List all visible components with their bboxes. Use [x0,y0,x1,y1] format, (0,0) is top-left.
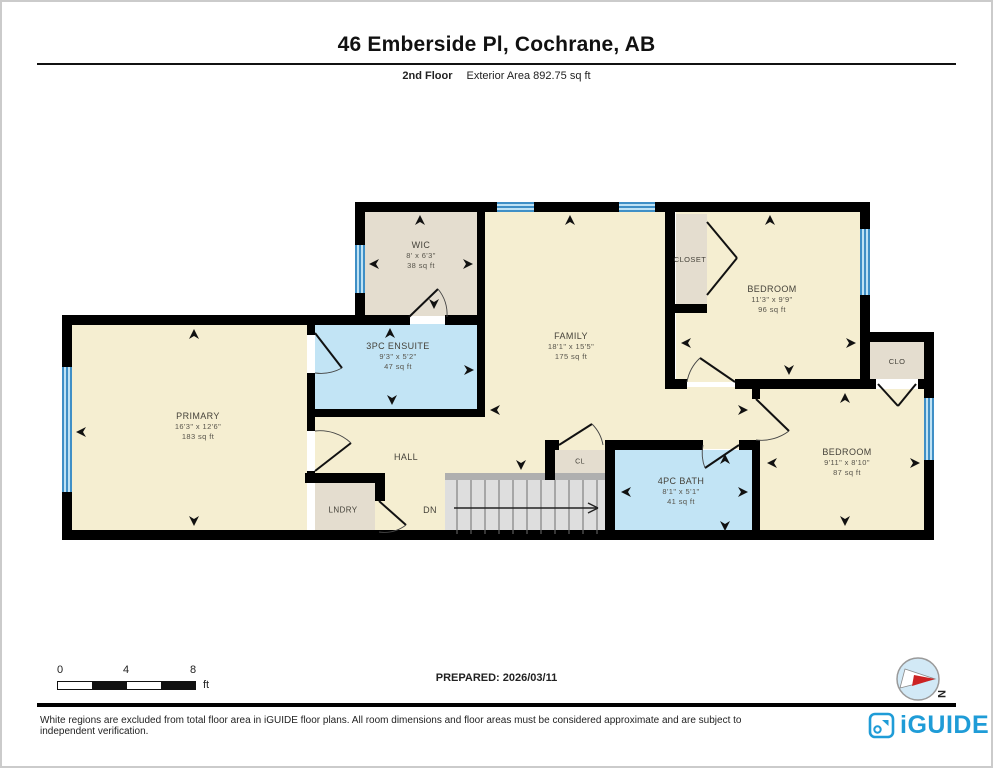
room-name-bedroom-2: BEDROOM [822,446,871,458]
room-dimensions-family: 18'1" x 15'5" [548,342,594,352]
wall-27 [605,440,615,540]
wall-14 [305,473,385,483]
room-label-bedroom-1: BEDROOM11'3" x 9'9"96 sq ft [747,283,796,315]
room-label-wic: WIC8' x 6'3"38 sq ft [406,239,436,271]
wall-7 [860,332,934,342]
room-name-cl: CL [575,457,585,466]
iguide-logo: iGUIDE [868,711,989,740]
room-area-family: 175 sq ft [548,352,594,362]
iguide-logo-text: iGUIDE [900,711,989,740]
prepared-date: PREPARED: 2026/03/11 [2,672,991,684]
wall-24 [752,440,760,540]
wall-12 [307,373,315,431]
room-name-closet-1: CLOSET [674,255,706,265]
room-dimensions-bedroom-2: 9'11" x 8'10" [822,458,871,468]
room-area-ensuite: 47 sq ft [366,362,429,372]
room-label-ensuite: 3PC ENSUITE9'3" x 5'2"47 sq ft [366,340,429,372]
wall-16 [355,315,410,325]
wall-3 [62,315,365,325]
room-area-bedroom-1: 96 sq ft [747,305,796,315]
room-dimensions-bath: 8'1" x 5'1" [658,487,705,497]
wall-19 [665,304,707,313]
room-name-family: FAMILY [548,330,594,342]
room-label-bedroom-2: BEDROOM9'11" x 8'10"87 sq ft [822,446,871,478]
room-name-bedroom-1: BEDROOM [747,283,796,295]
wall-22 [918,379,934,389]
room-area-primary: 183 sq ft [175,432,221,442]
room-name-dn: DN [423,504,437,516]
room-label-clo: CLO [889,357,906,367]
window-5 [860,229,870,295]
wall-9 [477,202,485,417]
wall-18 [665,212,675,384]
stair-rail-fill [445,473,605,480]
room-name-ensuite: 3PC ENSUITE [366,340,429,352]
room-name-lndry: LNDRY [329,506,358,517]
wall-26 [739,440,760,450]
wall-15 [375,483,385,501]
room-label-closet-1: CLOSET [674,255,706,265]
wall-11 [307,315,315,335]
wall-29 [545,440,555,480]
wall-25 [605,440,703,450]
room-label-primary: PRIMARY16'3" x 12'6"183 sq ft [175,410,221,442]
room-name-primary: PRIMARY [175,410,221,422]
room-dimensions-wic: 8' x 6'3" [406,251,436,261]
window-4 [619,202,655,212]
iguide-logo-icon [868,712,895,739]
room-area-bedroom-2: 87 sq ft [822,468,871,478]
disclaimer-text: White regions are excluded from total fl… [40,715,780,737]
compass-icon: N [886,650,954,710]
wall-10 [307,409,485,417]
room-label-cl: CL [575,457,585,466]
room-area-bath: 41 sq ft [658,497,705,507]
window-6 [924,398,934,460]
room-name-bath: 4PC BATH [658,475,705,487]
wall-5 [62,530,934,540]
window-2 [355,245,365,293]
room-area-wic: 38 sq ft [406,261,436,271]
floorplan-page: 46 Emberside Pl, Cochrane, AB 2nd FloorE… [0,0,993,768]
wall-17 [445,315,485,325]
floorplan-canvas: WIC8' x 6'3"38 sq ft3PC ENSUITE9'3" x 5'… [2,2,991,766]
room-label-family: FAMILY18'1" x 15'5"175 sq ft [548,330,594,362]
room-label-lndry: LNDRY [329,506,358,517]
room-dimensions-primary: 16'3" x 12'6" [175,422,221,432]
stairs-fill [445,480,605,535]
room-label-hall: HALL [394,451,418,463]
room-name-clo: CLO [889,357,906,367]
room-label-dn: DN [423,504,437,516]
room-name-hall: HALL [394,451,418,463]
wall-20 [665,379,687,389]
room-dimensions-ensuite: 9'3" x 5'2" [366,352,429,362]
compass-north-label: N [935,690,947,698]
wall-1 [355,202,870,212]
room-name-wic: WIC [406,239,436,251]
wall-23 [752,379,760,399]
window-1 [62,367,72,492]
room-label-bath: 4PC BATH8'1" x 5'1"41 sq ft [658,475,705,507]
footer-divider [37,703,956,707]
window-3 [497,202,534,212]
room-dimensions-bedroom-1: 11'3" x 9'9" [747,295,796,305]
